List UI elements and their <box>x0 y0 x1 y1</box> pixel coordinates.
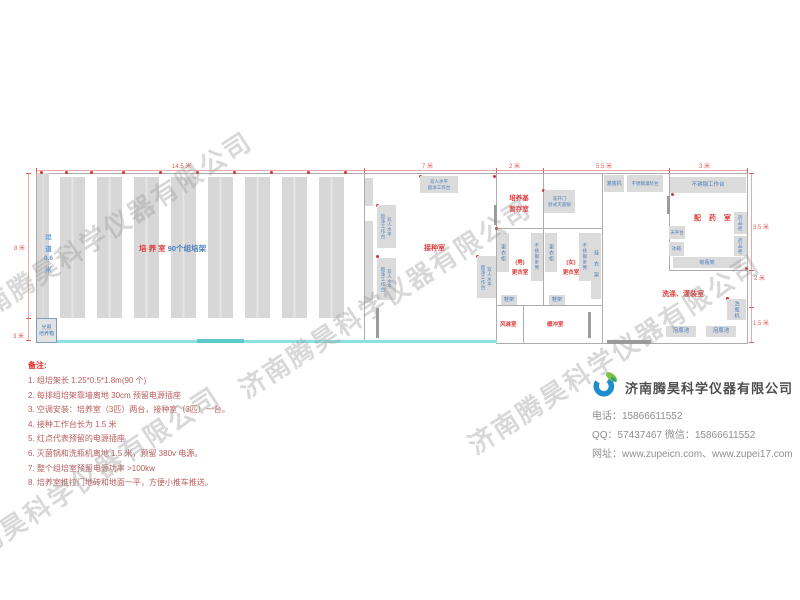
washer-label: 洗瓶机 <box>734 301 740 319</box>
aisle-width-label: 过 道 0.6 米 <box>44 231 53 274</box>
dim-label-8m: 8 米 <box>14 243 25 252</box>
power-outlet-dot <box>159 171 162 174</box>
dim-tick <box>26 318 31 319</box>
power-outlet-dot <box>493 175 496 178</box>
male-line: (男) <box>508 258 532 268</box>
male-line: 更衣室 <box>508 268 532 278</box>
door-buffer <box>588 312 591 338</box>
bench-line: 超净工作台 <box>381 214 386 239</box>
soak-pool-box-1: 泡瓶池 <box>666 326 696 337</box>
coat-hanger-box: 挂衣架 <box>591 233 601 299</box>
culture-rack <box>97 177 122 318</box>
incubator-line: 光照 <box>39 325 54 331</box>
dim-line-top <box>36 170 747 171</box>
dim-tick <box>749 307 754 308</box>
female-line: 更衣室 <box>558 268 584 278</box>
bottle-drying-rack-box: 晾瓶架 <box>673 257 741 268</box>
dim-tick <box>749 342 754 343</box>
aisle-char: 0.6 <box>44 255 53 262</box>
power-outlet-dot <box>307 171 310 174</box>
coat-hanger-label: 挂衣架 <box>593 250 599 283</box>
dim-label-3-5m: 3.5 米 <box>753 222 769 231</box>
company-name: 济南腾昊科学仪器有限公司 <box>625 378 793 397</box>
door-pharmacy <box>667 196 670 214</box>
laminar-bench-left-2: 双人水平 超净工作台 <box>377 258 396 300</box>
cabinet-label: 药品柜 <box>738 238 743 255</box>
sliding-door-culture <box>197 339 244 343</box>
wall-changing-bottom <box>496 305 603 306</box>
worktable-box: 不锈钢工作台 <box>670 177 746 193</box>
culture-rack <box>60 177 85 318</box>
power-outlet-dot <box>233 171 236 174</box>
note-item: 1. 组培架长 1.25*0.5*1.8m(90 个) <box>28 375 230 386</box>
fridge-box: 冰箱 <box>669 242 684 256</box>
bench-line: 双人水平 <box>428 179 451 184</box>
dim-label-2m: 2 米 <box>509 161 520 170</box>
incubator-line: 培养箱 <box>39 331 54 337</box>
wall-cabinet-strip <box>365 178 373 206</box>
notes-title: 备注: <box>28 360 230 371</box>
power-outlet-dot <box>196 171 199 174</box>
note-item: 3. 空调安装：培养室（3匹）两台，接种室（3匹）一台。 <box>28 404 230 415</box>
dim-label-3m: 3 米 <box>699 161 710 170</box>
light-incubator-box: 光照 培养箱 <box>36 318 57 343</box>
washing-room-label: 洗涤、灌装室 <box>662 289 704 299</box>
culture-rack <box>208 177 233 318</box>
bench-line: 双人水平 <box>387 217 392 237</box>
floor-plan-canvas: 14.5 米 7 米 2 米 5.5 米 3 米 8 米 3 米 3.5 米 2… <box>0 0 800 600</box>
wall-changing-washing <box>602 173 603 344</box>
note-item: 8. 培养室推拉门地砖和地面一平，方便小推车推送。 <box>28 477 230 488</box>
bench-line: 超净工作台 <box>381 267 386 292</box>
power-outlet-dot <box>90 171 93 174</box>
wall-right <box>747 173 748 344</box>
power-outlet-dot <box>40 171 43 174</box>
note-item: 4. 接种工作台长为 1.5 米 <box>28 419 230 430</box>
company-website: 网址：www.zupeicn.com、www.zupei17.com <box>592 445 793 460</box>
culture-room-name: 培 养 室 <box>139 244 166 253</box>
culture-room-rack-count: 90个组培架 <box>168 244 206 253</box>
dim-tick <box>26 340 31 341</box>
company-info: 济南腾昊科学仪器有限公司 电话：15866611552 QQ：57437467 … <box>592 371 793 460</box>
bench-line: 双人水平 <box>487 267 492 287</box>
power-outlet-dot <box>344 171 347 174</box>
note-item: 5. 红点代表预留的电源插座 <box>28 433 230 444</box>
soak-pool-box-2: 泡瓶池 <box>706 326 736 337</box>
dim-label-7m: 7 米 <box>422 161 433 170</box>
dim-tick <box>749 270 754 271</box>
culture-room-label: 培 养 室 90个组培架 <box>139 243 206 254</box>
culture-rack <box>319 177 344 318</box>
note-item: 2. 每排组培架靠墙离地 30cm 预留电源插座 <box>28 390 230 401</box>
power-outlet-dot <box>745 267 748 270</box>
bench-line: 双人水平 <box>387 269 392 289</box>
laminar-bench-left-1: 双人水平 超净工作台 <box>377 205 396 248</box>
aisle-char: 道 <box>45 243 52 253</box>
door-inoculation <box>376 308 379 338</box>
aisle-char: 过 <box>45 231 52 241</box>
company-qq-wechat: QQ：57437467 微信：15866611552 <box>592 426 793 441</box>
locker-label: 更衣柜 <box>548 244 554 262</box>
bench-line: 超净工作台 <box>428 185 451 190</box>
company-phone: 电话：15866611552 <box>592 407 793 422</box>
storage-line: 培养基 <box>500 193 538 204</box>
laminar-bench-top: 双人水平 超净工作台 <box>420 176 458 193</box>
note-item: 7. 整个组培室预留电源功率 >100kw <box>28 463 230 474</box>
dim-label-1-5m: 1.5 米 <box>753 318 769 327</box>
locker-label: 更衣柜 <box>500 244 506 262</box>
power-outlet-dot <box>122 171 125 174</box>
female-line: (女) <box>558 258 584 268</box>
dim-label-14-5m: 14.5 米 <box>172 161 191 170</box>
company-header: 济南腾昊科学仪器有限公司 <box>592 371 793 403</box>
power-outlet-dot <box>495 227 498 230</box>
female-changing-label: (女) 更衣室 <box>558 258 584 278</box>
locker-box-2: 更衣柜 <box>545 233 557 272</box>
wall-changing-top <box>496 228 603 229</box>
filling-machine-box: 灌装机 <box>604 175 624 192</box>
medicine-cabinet-box-1: 药品柜 <box>734 212 747 234</box>
power-outlet-dot <box>671 193 674 196</box>
laminar-bench-right: 双人水平 超净工作台 <box>477 256 496 298</box>
culture-rack <box>282 177 307 318</box>
wall-pharmacy-bottom <box>669 270 748 271</box>
balance-table-box: 天平台 <box>669 226 685 239</box>
male-changing-label: (男) 更衣室 <box>508 258 532 278</box>
bench-line: 超净工作台 <box>481 265 486 290</box>
aisle-char: 米 <box>45 264 52 274</box>
inoculation-room-label: 接种室 <box>424 243 445 253</box>
note-item: 6. 灭菌锅和洗瓶机离地 1.5 米，预留 380v 电源。 <box>28 448 230 459</box>
power-outlet-dot <box>270 171 273 174</box>
door-washing-bottom <box>607 340 651 344</box>
dim-tick <box>749 173 754 174</box>
cabinet-label: 药品柜 <box>738 215 743 232</box>
storage-line: 暂存室 <box>500 204 538 215</box>
wall-bottom-glass <box>36 340 497 343</box>
air-shower-label: 风淋室 <box>500 320 517 328</box>
buffer-room-label: 缓冲室 <box>547 320 564 328</box>
sterilizer-box: 双开门 卧式灭菌锅 <box>544 190 575 213</box>
shoe-rack-box-2: 鞋架 <box>549 295 565 305</box>
medicine-cabinet-box-2: 药品柜 <box>734 236 747 256</box>
power-outlet-dot <box>65 171 68 174</box>
pharmacy-room-label: 配 药 室 <box>694 213 734 223</box>
door-storage <box>494 205 497 225</box>
dim-label-2m-right: 2 米 <box>754 273 765 282</box>
notes-section: 备注: 1. 组培架长 1.25*0.5*1.8m(90 个) 2. 每排组培架… <box>28 360 230 492</box>
bottle-washer-box: 洗瓶机 <box>727 299 746 320</box>
dim-label-3m-left: 3 米 <box>13 331 24 340</box>
medium-storage-label: 培养基 暂存室 <box>500 193 538 215</box>
wall-airshower-buffer <box>523 305 524 344</box>
wall-cabinet-strip <box>365 221 373 303</box>
company-logo-icon <box>592 371 619 403</box>
shoe-rack-box-1: 鞋架 <box>501 295 517 305</box>
wall-top <box>36 173 748 174</box>
dim-tick <box>26 173 31 174</box>
steel-bench-box-1: 不锈钢条凳 <box>531 233 543 281</box>
dim-line-left <box>28 173 29 341</box>
sterilizer-line: 卧式灭菌锅 <box>548 202 571 207</box>
culture-rack <box>245 177 270 318</box>
filling-table-box: 不锈钢灌装台 <box>627 175 663 192</box>
dim-line-right <box>751 173 752 343</box>
steel-bench-label: 不锈钢条凳 <box>534 243 539 271</box>
dim-label-5-5m: 5.5 米 <box>596 161 612 170</box>
